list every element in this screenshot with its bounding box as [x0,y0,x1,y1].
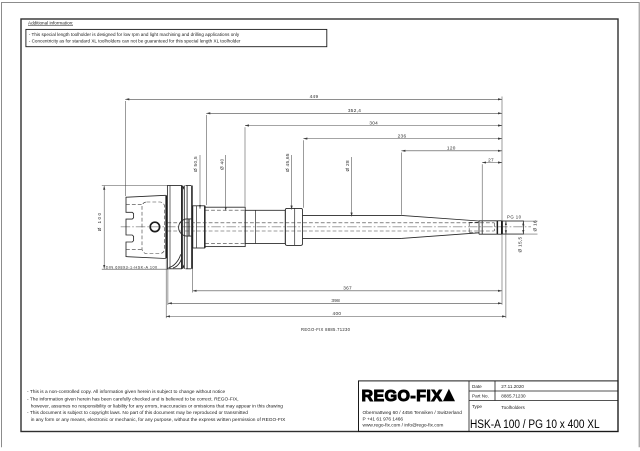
svg-text:Obermattweg 60 / 4456 Tenniken: Obermattweg 60 / 4456 Tenniken / Switzer… [363,410,463,416]
svg-text:Date: Date [472,384,482,389]
svg-text:www.rego-fix.com / info@rego-f: www.rego-fix.com / info@rego-fix.com [363,422,444,428]
svg-text:27: 27 [488,157,494,162]
svg-text:REGO-FIX 8885.71230: REGO-FIX 8885.71230 [301,327,351,332]
svg-text:Part No.: Part No. [472,394,489,399]
svg-text:PG 10: PG 10 [507,215,522,220]
svg-text:304: 304 [369,120,378,125]
svg-text:120: 120 [447,146,456,151]
svg-text:REGO-FIX: REGO-FIX [362,388,443,405]
svg-text:Ø 16: Ø 16 [533,220,538,231]
svg-text:Ø 100: Ø 100 [97,212,102,232]
svg-text:Ø 15,5: Ø 15,5 [517,237,522,253]
svg-text:8885.71230: 8885.71230 [501,394,526,399]
svg-text:- Concentricity as for standar: - Concentricity as for standard XL toolh… [29,38,241,43]
svg-text:- This document is subject to: - This document is subject to copyright … [27,410,248,416]
svg-text:27.11.2020: 27.11.2020 [501,384,524,389]
svg-text:DIN 69893-1-HSK-A 100: DIN 69893-1-HSK-A 100 [106,265,158,269]
svg-text:398: 398 [331,298,340,303]
svg-text:- This special length toolhold: - This special length toolholder is desi… [29,32,240,37]
svg-text:449: 449 [310,94,319,99]
svg-text:352,4: 352,4 [348,108,361,113]
svg-text:236: 236 [398,133,407,138]
svg-text:Ø 28: Ø 28 [345,160,350,171]
svg-text:- This is a non-controlled cop: - This is a non-controlled copy. All inf… [27,389,226,395]
svg-text:Ø 50,5: Ø 50,5 [193,156,198,172]
svg-text:Ø 45,65: Ø 45,65 [285,153,290,172]
svg-text:- The information given herein: - The information given herein has been … [27,396,239,402]
svg-text:in any form or any means, elec: in any form or any means, electronic or … [31,417,286,423]
svg-text:367: 367 [343,286,352,291]
svg-text:Ø 40: Ø 40 [220,159,225,170]
svg-text:however, assumes no responsibi: however, assumes no responsibility or li… [31,403,284,409]
svg-text:Type: Type [472,404,482,409]
svg-text:HSK-A 100 / PG 10 x 400 XL: HSK-A 100 / PG 10 x 400 XL [470,418,600,431]
svg-text:400: 400 [333,311,342,316]
svg-text:P +41 61 976 1466: P +41 61 976 1466 [363,416,404,422]
svg-text:Toolholders: Toolholders [501,405,525,410]
svg-text:Additional information:: Additional information: [28,21,73,26]
